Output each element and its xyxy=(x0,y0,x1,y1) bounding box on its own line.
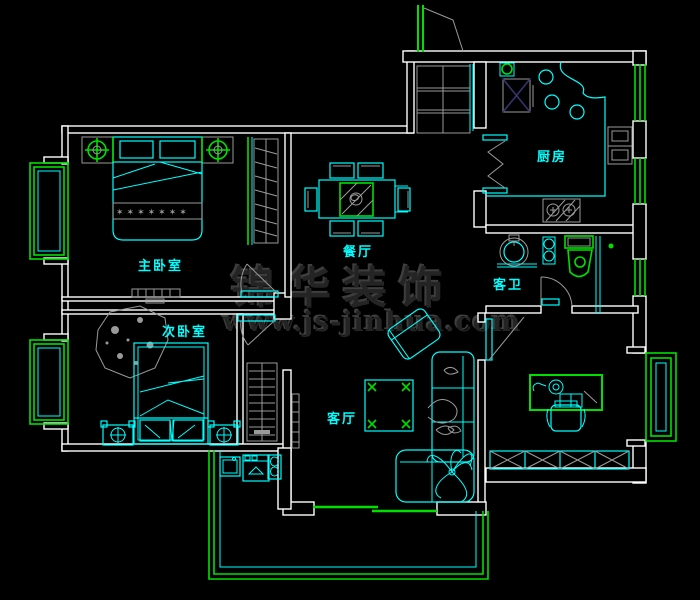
study-furniture xyxy=(490,375,629,469)
utility-sink xyxy=(220,457,240,476)
bay-window-second-bedroom xyxy=(30,340,68,424)
utility-fixtures xyxy=(220,455,281,481)
entry-door xyxy=(418,5,463,52)
bathroom-fixtures xyxy=(497,235,614,314)
nightstand-left xyxy=(101,421,135,445)
storage-cabinet-row xyxy=(490,451,629,469)
dining-set xyxy=(305,163,410,236)
desk-chair xyxy=(547,401,585,431)
floor-plan-drawing: 锦华装饰 锦华装饰 www.js-jinhua.com www.js-jinhu… xyxy=(0,0,700,600)
room-label-kitchen: 厨房 xyxy=(537,149,567,165)
refrigerator-x xyxy=(503,79,533,112)
double-bed: ✶✶✶✶✶✶✶ xyxy=(113,137,202,240)
single-bed xyxy=(134,343,208,444)
room-label-second-bedroom: 次卧室 xyxy=(162,324,207,340)
nightstand-right xyxy=(208,421,240,445)
bathroom-door xyxy=(541,277,572,306)
floor-plan: 锦华装饰 锦华装饰 www.js-jinhua.com www.js-jinhu… xyxy=(0,0,700,600)
balcony-slider-door xyxy=(313,507,437,511)
room-label-bathroom: 客卫 xyxy=(493,277,523,293)
washing-machine xyxy=(243,455,269,481)
radiator xyxy=(543,237,555,264)
gas-stove xyxy=(543,199,580,222)
sofa xyxy=(396,352,474,502)
entry-ceiling-lamp xyxy=(500,63,514,76)
floor-plant-sketch xyxy=(427,399,472,502)
bed-star-pattern: ✶✶✶✶✶✶✶ xyxy=(116,208,190,218)
sink-circles xyxy=(539,70,584,119)
kitchen-fixtures xyxy=(487,62,632,222)
plant-sketch xyxy=(96,306,168,378)
nightstand-left xyxy=(82,137,113,163)
entry-cabinet xyxy=(417,64,473,133)
washbasin xyxy=(500,235,528,266)
tv-unit xyxy=(292,394,299,448)
dining-niche xyxy=(395,186,408,212)
drain-dot xyxy=(609,244,614,249)
bay-window-study xyxy=(646,353,676,441)
coffee-table xyxy=(365,380,413,431)
room-label-living: 客厅 xyxy=(327,411,357,427)
wardrobe xyxy=(248,137,278,245)
shower-screen xyxy=(596,236,600,314)
nightstand-right xyxy=(202,137,233,163)
hall-shelf xyxy=(247,363,277,441)
kitchen-bifold-door xyxy=(483,135,507,193)
bay-window-master xyxy=(30,163,68,259)
toilet xyxy=(565,236,593,277)
bathroom-window xyxy=(635,259,645,296)
room-label-dining: 餐厅 xyxy=(342,244,373,260)
room-label-master-bedroom: 主卧室 xyxy=(138,258,183,274)
fridge-cabinet xyxy=(608,127,632,164)
